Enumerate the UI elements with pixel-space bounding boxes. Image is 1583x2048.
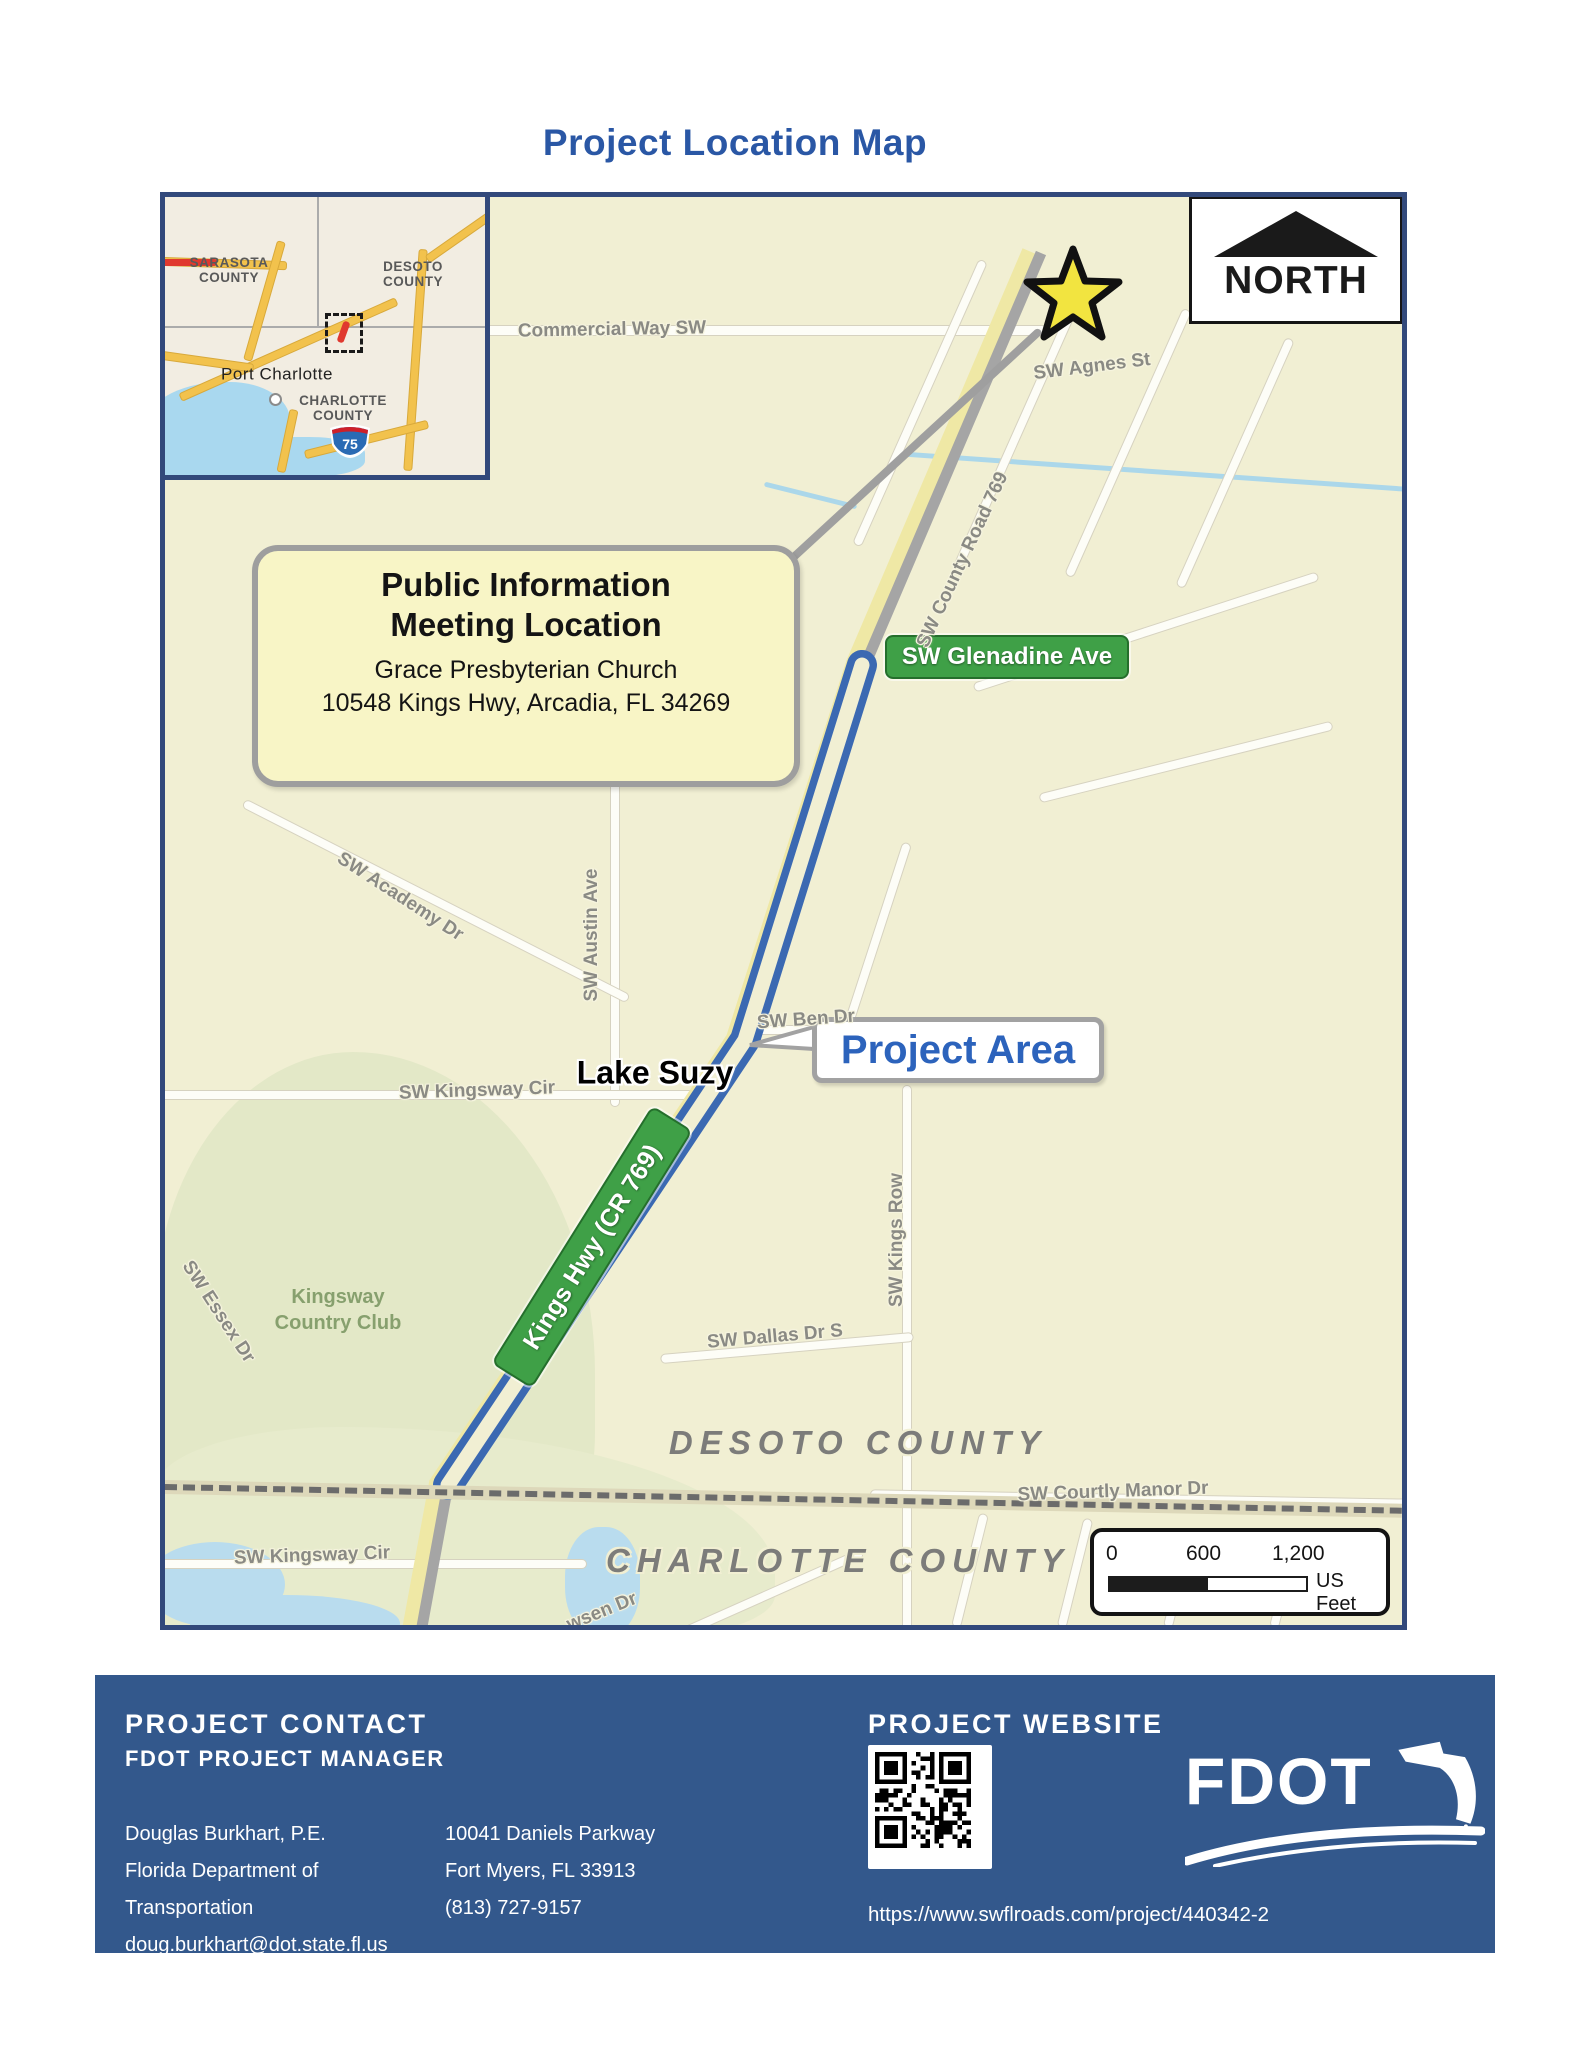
- north-label: NORTH: [1224, 259, 1368, 303]
- inset-label-charlotte: CHARLOTTECOUNTY: [299, 394, 387, 424]
- project-location-map: 75 SARASOTACOUNTY DESOTOCOUNTY Port Char…: [160, 192, 1407, 1630]
- county-label-desoto: DESOTO COUNTY: [669, 1424, 1047, 1462]
- county-label-charlotte: CHARLOTTE COUNTY: [606, 1542, 1070, 1580]
- fdot-logo-text: FDOT: [1185, 1743, 1373, 1819]
- meeting-location-star-icon: [1023, 245, 1123, 345]
- interstate-75-shield-icon: 75: [328, 421, 372, 459]
- svg-text:75: 75: [342, 436, 358, 452]
- inset-overview-map: 75 SARASOTACOUNTY DESOTOCOUNTY Port Char…: [165, 197, 490, 480]
- scale-unit: US Feet: [1316, 1570, 1386, 1616]
- fdot-logo: FDOT: [1185, 1735, 1485, 1875]
- inset-label-sarasota: SARASOTACOUNTY: [190, 256, 269, 286]
- road-label-austin: SW Austin Ave: [581, 868, 603, 1001]
- contact-phone: (813) 727-9157: [445, 1890, 655, 1927]
- contact-column-left: Douglas Burkhart, P.E. Florida Departmen…: [125, 1816, 423, 1964]
- contact-city: Fort Myers, FL 33913: [445, 1853, 655, 1890]
- north-arrow-icon: [1214, 211, 1378, 257]
- callout-address: 10548 Kings Hwy, Arcadia, FL 34269: [258, 687, 794, 721]
- place-label-lake-suzy: Lake Suzy: [577, 1055, 734, 1092]
- road-label-commercial-way: Commercial Way SW: [518, 317, 707, 342]
- inset-road: [425, 197, 490, 263]
- footer-band: PROJECT CONTACT FDOT PROJECT MANAGER Dou…: [95, 1675, 1495, 1953]
- scale-tick-1200: 1,200: [1272, 1542, 1325, 1566]
- inset-county-line-v: [317, 197, 319, 327]
- callout-title-line2: Meeting Location: [258, 605, 794, 645]
- meeting-location-callout: Public Information Meeting Location Grac…: [252, 545, 800, 787]
- inset-city-marker: [269, 393, 282, 406]
- contact-heading: PROJECT CONTACT: [125, 1709, 655, 1740]
- contact-org: Florida Department of Transportation: [125, 1853, 423, 1927]
- page-title: Project Location Map: [0, 122, 1470, 164]
- qr-code: [868, 1745, 992, 1869]
- contact-name: Douglas Burkhart, P.E.: [125, 1816, 423, 1853]
- scale-tick-0: 0: [1106, 1542, 1118, 1566]
- scale-bar: 0 600 1,200 US Feet: [1090, 1528, 1390, 1616]
- callout-venue: Grace Presbyterian Church: [258, 654, 794, 688]
- callout-title-line1: Public Information: [258, 565, 794, 605]
- contact-subheading: FDOT PROJECT MANAGER: [125, 1746, 655, 1772]
- website-heading: PROJECT WEBSITE: [868, 1709, 1164, 1740]
- fdot-swoosh-icon: [1185, 1817, 1485, 1867]
- inset-project-marker: [325, 313, 363, 353]
- inset-road: [178, 297, 398, 402]
- scale-bar-graphic: [1108, 1576, 1308, 1592]
- contact-email[interactable]: doug.burkhart@dot.state.fl.us: [125, 1927, 423, 1964]
- place-label-country-club: KingswayCountry Club: [275, 1284, 402, 1336]
- project-area-label: Project Area: [812, 1017, 1104, 1083]
- website-url[interactable]: https://www.swflroads.com/project/440342…: [868, 1903, 1269, 1927]
- contact-street: 10041 Daniels Parkway: [445, 1816, 655, 1853]
- inset-label-port-charlotte: Port Charlotte: [221, 366, 333, 385]
- inset-label-desoto: DESOTOCOUNTY: [383, 260, 443, 290]
- road-label-kings-row: SW Kings Row: [886, 1173, 908, 1307]
- scale-tick-600: 600: [1186, 1542, 1221, 1566]
- north-arrow-box: NORTH: [1189, 196, 1403, 324]
- contact-column-right: 10041 Daniels Parkway Fort Myers, FL 339…: [445, 1816, 655, 1964]
